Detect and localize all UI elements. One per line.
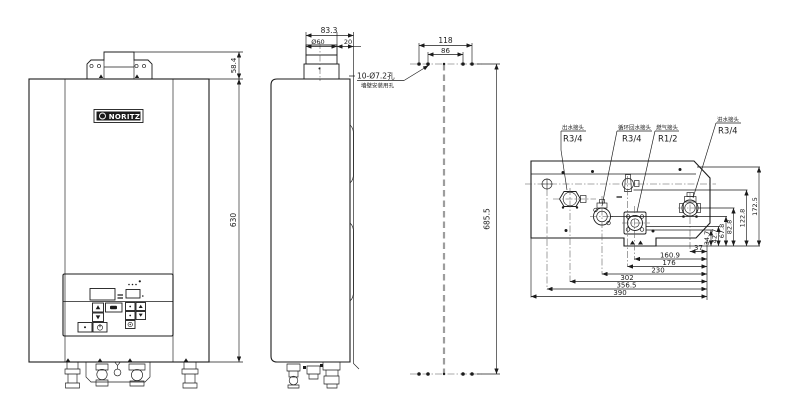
hot-water-outlet-fitting	[560, 192, 587, 209]
label-size-circulation: R3/4	[622, 135, 642, 145]
mount-holes	[417, 62, 474, 376]
bracket-inner-lines	[104, 60, 134, 79]
label-circulation-return: 循环回水接头 R3/4	[602, 124, 652, 207]
label-size-inlet: R3/4	[718, 127, 738, 137]
foot-marks	[66, 358, 188, 361]
front-extension-lines	[134, 52, 243, 362]
dim-text-body-height: 630	[229, 213, 238, 228]
dim-text-37: 37	[694, 244, 703, 252]
mount-dimensions: 118 86 685.5	[419, 36, 500, 374]
mount-note: 10-Ø7.2孔 墙壁安装用孔	[357, 66, 429, 90]
dim-text-hole-width-inner: 86	[441, 47, 450, 55]
top-mounting-bracket	[87, 52, 152, 79]
dim-text-230: 230	[651, 267, 664, 275]
menu-icon	[118, 295, 124, 298]
connection-labels: 出水接头 R3/4 循环回水接头 R3/4 燃气接头 R1/2 进水接头 R3	[561, 116, 741, 213]
dim-text-82-8: 82.8	[726, 220, 734, 234]
bottom-view: 出水接头 R3/4 循环回水接头 R3/4 燃气接头 R1/2 进水接头 R3	[525, 116, 760, 301]
mount-note-text: 10-Ø7.2孔	[357, 72, 395, 81]
right-button-grid	[126, 303, 146, 329]
side-bottom-piping	[287, 362, 340, 388]
priority-dot-icon	[84, 326, 86, 328]
leader-inlet	[693, 123, 716, 198]
secondary-display	[126, 290, 140, 299]
mount-note-leader	[404, 66, 429, 81]
label-cn-gas: 燃气接头	[656, 124, 679, 132]
dim-text-offset: 20	[344, 38, 352, 46]
water-heater-dimension-drawing: NORITZ	[0, 0, 790, 416]
up-arrow-icon	[96, 305, 101, 309]
side-view: 83.3 Ø60 20	[271, 26, 361, 388]
shutoff-valve	[623, 175, 640, 192]
label-cn-circulation: 循环回水接头	[618, 124, 652, 132]
bracket-arrow-marks	[99, 74, 139, 78]
tab-arrow-marks	[630, 241, 643, 245]
down-arrow-icon	[96, 315, 101, 319]
mount-note-subtext: 墙壁安装用孔	[361, 82, 395, 90]
label-cn-inlet: 进水接头	[717, 116, 740, 124]
leader-circulation	[602, 131, 617, 206]
mount-hole-pattern: 10-Ø7.2孔 墙壁安装用孔 118 86 685.5	[357, 36, 500, 376]
dim-text-total-depth: 83.3	[321, 26, 338, 35]
front-body	[29, 79, 209, 362]
front-bottom-piping	[65, 358, 198, 388]
technical-drawing-page: NORITZ	[0, 0, 790, 416]
label-size-outlet: R3/4	[563, 135, 583, 145]
power-button[interactable]	[93, 323, 107, 333]
dim-text-hole-width-outer: 118	[438, 36, 453, 45]
label-cn-outlet: 出水接头	[562, 124, 585, 132]
brand-logo: NORITZ	[94, 110, 143, 123]
dim-text-390: 390	[613, 289, 626, 297]
drain-valve[interactable]	[114, 369, 121, 376]
front-view: NORITZ	[29, 52, 243, 388]
label-gas-connection: 燃气接头 R1/2	[637, 124, 679, 213]
corner-screw	[542, 179, 553, 190]
flue-pipe	[304, 42, 339, 81]
fitting-centerlines	[547, 176, 690, 290]
pipe-fitting-4	[182, 362, 198, 388]
indicator-leds	[128, 280, 141, 285]
panel-frame	[63, 274, 173, 336]
label-hot-water-outlet: 出水接头 R3/4	[561, 124, 586, 191]
dim-text-bracket-height: 58.4	[230, 57, 238, 73]
side-body	[271, 79, 350, 362]
label-water-inlet: 进水接头 R3/4	[693, 116, 741, 199]
control-panel	[63, 274, 173, 336]
hole-row-centerlines	[410, 64, 482, 374]
mode-icon	[110, 306, 117, 310]
pipe-fitting-1	[65, 362, 80, 388]
bottom-horizontal-dimensions: 37 160.9 176 230 302 356.5 390	[531, 238, 707, 300]
logo-text: NORITZ	[109, 113, 140, 121]
display-dot	[142, 295, 144, 297]
dim-text-flue-diameter: Ø60	[311, 38, 324, 46]
side-dimensions: 83.3 Ø60 20	[306, 26, 361, 76]
label-size-gas: R1/2	[658, 135, 678, 145]
dim-text-122-8: 122.8	[739, 209, 747, 228]
pipe-fitting-2	[96, 364, 108, 386]
dim-text-hole-height: 685.5	[483, 208, 492, 230]
dim-text-172-5: 172.5	[751, 197, 759, 216]
front-panel-seams	[65, 79, 173, 362]
temperature-display[interactable]	[90, 289, 115, 301]
front-dimensions: 58.4 630	[134, 52, 243, 362]
